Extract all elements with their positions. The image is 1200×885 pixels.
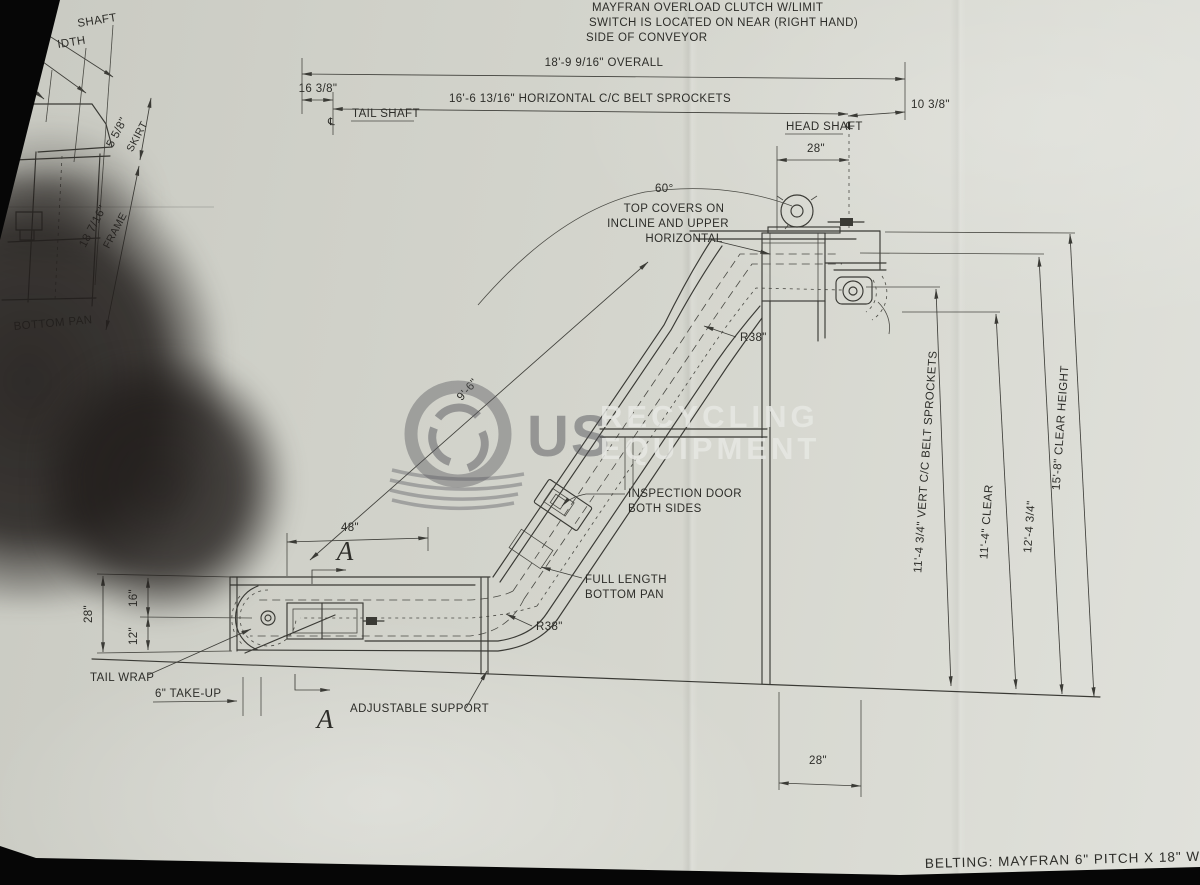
dim-r38-lower: R38" [536, 621, 563, 633]
end-view-section: SHAFT IDTH RTS 5 5/8" SKIRT 18 7/16" FRA… [2, 12, 151, 333]
note-line-2: SWITCH IS LOCATED ON NEAR (RIGHT HAND) [589, 17, 858, 29]
bottom-pan-label: BOTTOM PAN [13, 314, 93, 333]
section-a-marker-top: A [335, 536, 354, 566]
right-dimensions: 11'-4 3/4" VERT C/C BELT SPROCKETS 11'-4… [860, 232, 1094, 697]
conveyor-drawing-svg: MAYFRAN OVERLOAD CLUTCH W/LIMIT SWITCH I… [0, 0, 1200, 885]
dim-clear-height: 15'-8" CLEAR HEIGHT [1051, 365, 1072, 491]
watermark-us: US [527, 404, 612, 469]
watermark-ring [411, 387, 505, 481]
incline-panel [509, 529, 553, 568]
watermark: US RECYCLING EQUIPMENT [390, 387, 820, 508]
bottom-dimension: 28" [779, 692, 861, 797]
dim-horizontal-cc: 16'-6 13/16" HORIZONTAL C/C BELT SPROCKE… [449, 93, 731, 105]
dim-tail-offset: 16 3/8" [299, 83, 338, 95]
dim-bottom-28: 28" [809, 755, 827, 767]
tail-sprocket [261, 611, 275, 625]
dim-clear-11: 11'-4" CLEAR [978, 484, 995, 559]
top-covers-line-3: HORIZONTAL [645, 233, 722, 245]
inspection-door-label-2: BOTH SIDES [628, 503, 702, 515]
full-length-label-1: FULL LENGTH [585, 574, 667, 586]
tail-wrap-label: TAIL WRAP [90, 672, 154, 684]
tail-shaft-label: TAIL SHAFT [352, 108, 420, 120]
end-view-shaft-label: SHAFT [77, 12, 118, 30]
dim-48: 48" [341, 522, 359, 534]
dim-top-28: 28" [807, 143, 825, 155]
take-up-screw [366, 617, 377, 625]
drive-motor [781, 195, 813, 227]
end-view-width-label: IDTH [57, 35, 87, 51]
dim-overall: 18'-9 9/16" OVERALL [545, 57, 664, 69]
tail-dimensions: 28" 16" 12" TAIL WRAP 6" TAKE-UP 48" A A… [83, 522, 489, 734]
watermark-recycling: RECYCLING [600, 399, 819, 434]
full-length-label-2: BOTTOM PAN [585, 589, 664, 601]
end-view-skirts-label: RTS [19, 55, 45, 71]
dim-vert-cc: 11'-4 3/4" VERT C/C BELT SPROCKETS [912, 350, 940, 573]
top-covers-line-1: TOP COVERS ON [624, 203, 725, 215]
dim-left-12: 12" [128, 627, 140, 645]
dim-angle: 60° [655, 183, 674, 195]
belting-note: BELTING: MAYFRAN 6" PITCH X 18" WIDE STE… [925, 847, 1200, 871]
note-line-3: SIDE OF CONVEYOR [586, 32, 707, 44]
note-line-1: MAYFRAN OVERLOAD CLUTCH W/LIMIT [592, 2, 823, 14]
head-sprocket [843, 281, 863, 301]
top-covers-line-2: INCLINE AND UPPER [607, 218, 729, 230]
dim-r38-upper: R38" [740, 332, 767, 344]
inspection-door-label-1: INSPECTION DOOR [628, 488, 742, 500]
dim-left-28: 28" [83, 605, 95, 623]
tail-centerline-symbol: ℄ [327, 116, 335, 128]
dim-left-16: 16" [128, 589, 140, 607]
take-up-frame [287, 603, 363, 639]
dim-head-offset: 10 3/8" [911, 99, 950, 111]
section-a-marker-bottom: A [315, 704, 334, 734]
take-up-label: 6" TAKE-UP [155, 688, 221, 700]
head-centerline-symbol: ℄ [845, 120, 853, 132]
dim-height-12: 12'-4 3/4" [1022, 500, 1038, 553]
photo-of-conveyor-drawing: MAYFRAN OVERLOAD CLUTCH W/LIMIT SWITCH I… [0, 0, 1200, 885]
tail-assembly [230, 577, 557, 674]
top-note: MAYFRAN OVERLOAD CLUTCH W/LIMIT SWITCH I… [586, 2, 858, 44]
watermark-equipment: EQUIPMENT [600, 431, 820, 466]
recycle-icon [432, 408, 485, 468]
